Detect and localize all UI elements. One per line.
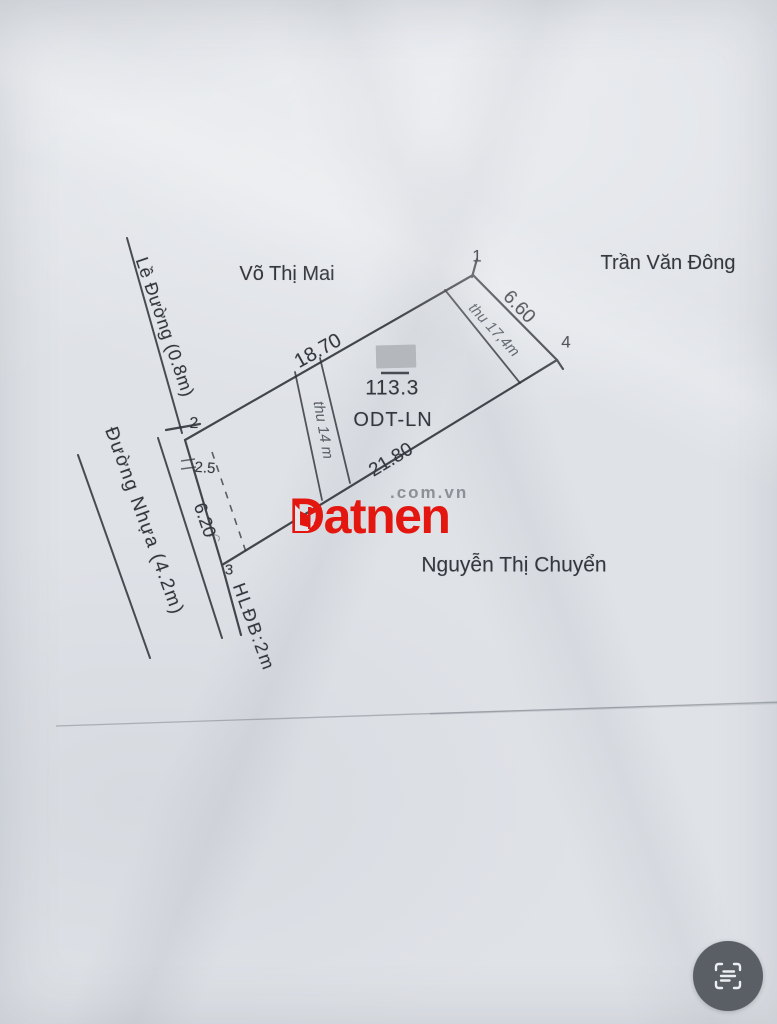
area-value: 113.3	[365, 378, 419, 399]
neighbor-label-top: Võ Thị Mai	[239, 264, 334, 284]
pencil-line	[56, 702, 777, 726]
vertex-label-2: 2	[190, 416, 199, 432]
neighbor-label-right: Trần Văn Đông	[601, 253, 736, 273]
redaction-box	[376, 344, 417, 368]
vertex-label-4: 4	[561, 334, 570, 351]
scan-text-icon	[709, 957, 747, 995]
vertex-label-3: 3	[225, 563, 233, 578]
dimension-label-right: 6.60	[499, 287, 538, 327]
offset-dimension: 2.5	[194, 460, 216, 476]
dashed-setback-line	[212, 452, 247, 555]
vertex-label-1: 1	[472, 248, 481, 265]
scan-fab-button[interactable]	[693, 941, 763, 1011]
dimension-label-left: 6.20	[191, 501, 219, 540]
watermark: .com.vn Datnen	[292, 481, 488, 541]
dimension-label-bottom: 21.80	[366, 440, 417, 481]
road-asphalt-label: Đường Nhựa (4.2m)	[101, 424, 187, 617]
parcel-outline	[166, 259, 563, 635]
paper-background: Võ Thị Mai Trần Văn Đông Nguyễn Thị Chuy…	[0, 0, 777, 1024]
watermark-suffix: .com.vn	[390, 483, 468, 503]
neighbor-label-bottom: Nguyễn Thị Chuyển	[421, 555, 606, 576]
land-use-code: ODT-LN	[353, 410, 432, 430]
road-shoulder-label: Lề Đường (0.8m)	[133, 255, 198, 399]
dimension-label-top: 18.70	[291, 330, 344, 372]
road-corridor-label: HLĐB:2m	[230, 581, 278, 674]
handwritten-note-middle: thu 14 m	[311, 400, 336, 460]
